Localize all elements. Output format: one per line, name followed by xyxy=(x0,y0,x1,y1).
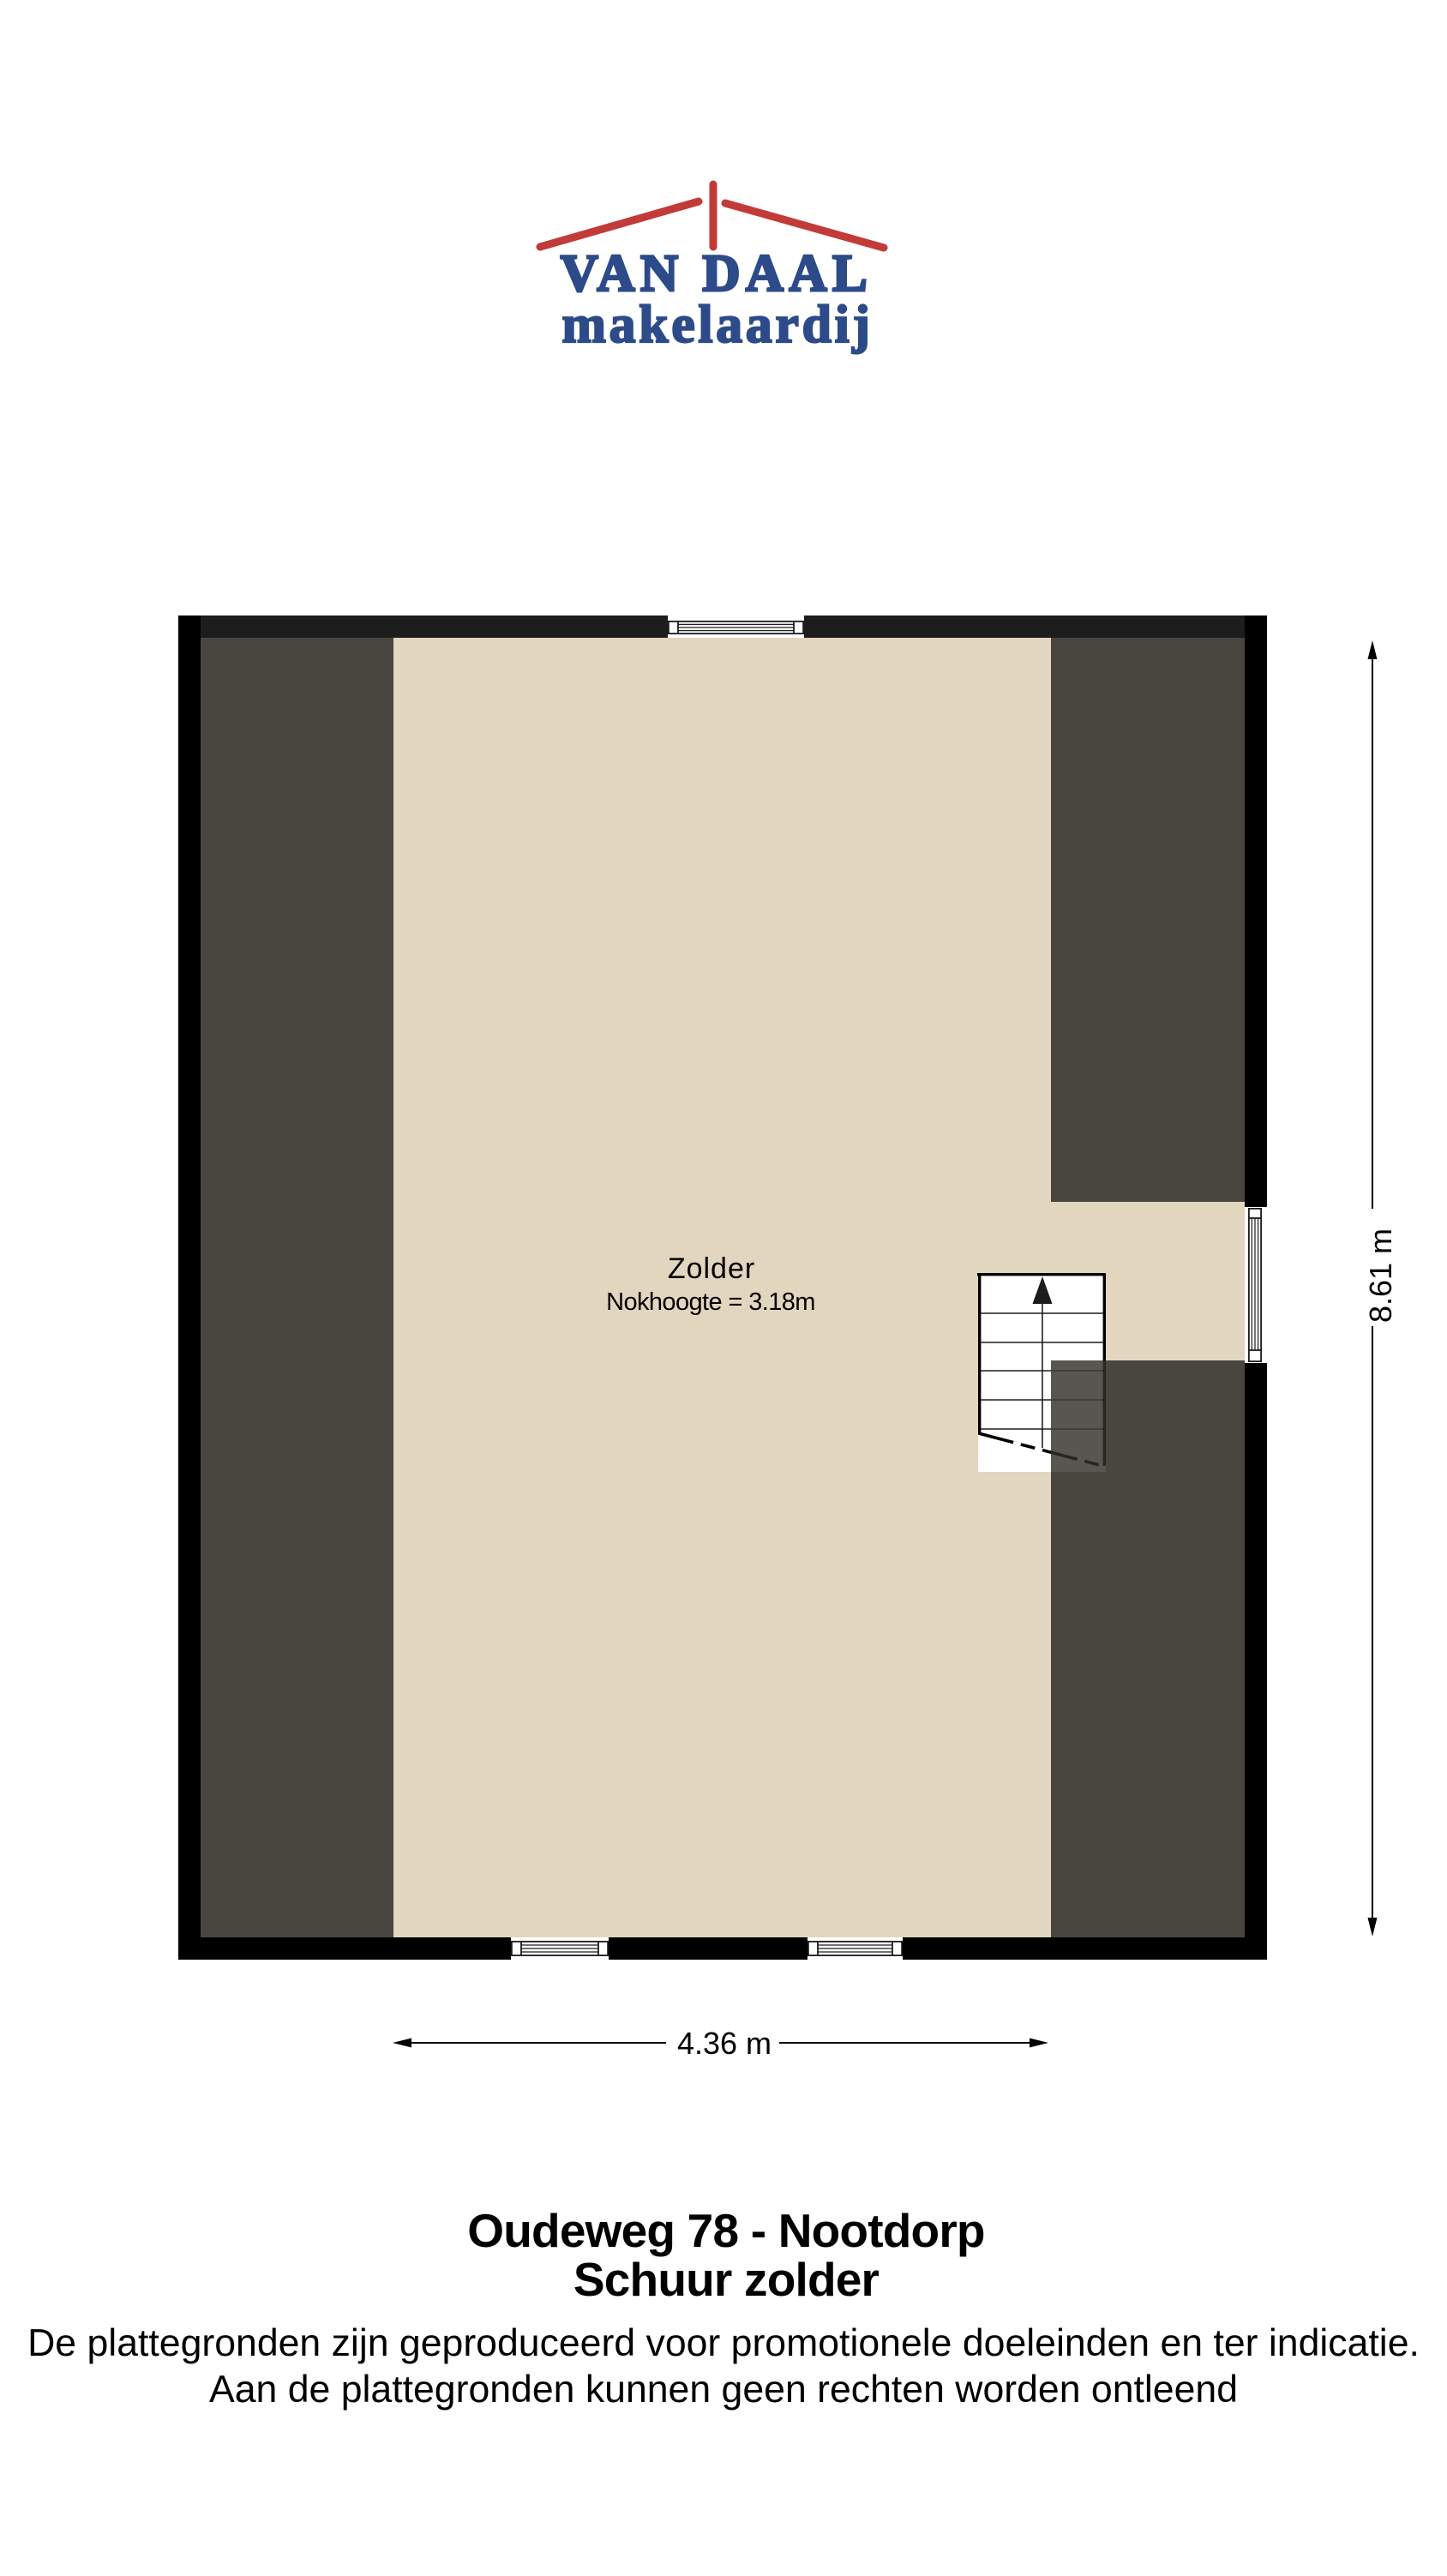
svg-text:4.36 m: 4.36 m xyxy=(677,2026,772,2061)
svg-text:VAN DAAL: VAN DAAL xyxy=(561,245,873,303)
svg-text:Aan de plattegronden kunnen ge: Aan de plattegronden kunnen geen rechten… xyxy=(209,2369,1238,2411)
svg-text:Oudeweg 78 - Nootdorp: Oudeweg 78 - Nootdorp xyxy=(467,2204,984,2257)
svg-text:Zolder: Zolder xyxy=(668,1252,755,1285)
svg-text:Nokhoogte = 3.18m: Nokhoogte = 3.18m xyxy=(606,1288,815,1316)
svg-text:makelaardij: makelaardij xyxy=(561,296,873,354)
svg-text:Schuur zolder: Schuur zolder xyxy=(573,2253,880,2306)
svg-text:De plattegronden zijn geproduc: De plattegronden zijn geproduceerd voor … xyxy=(27,2322,1420,2364)
svg-text:8.61 m: 8.61 m xyxy=(1363,1228,1398,1323)
